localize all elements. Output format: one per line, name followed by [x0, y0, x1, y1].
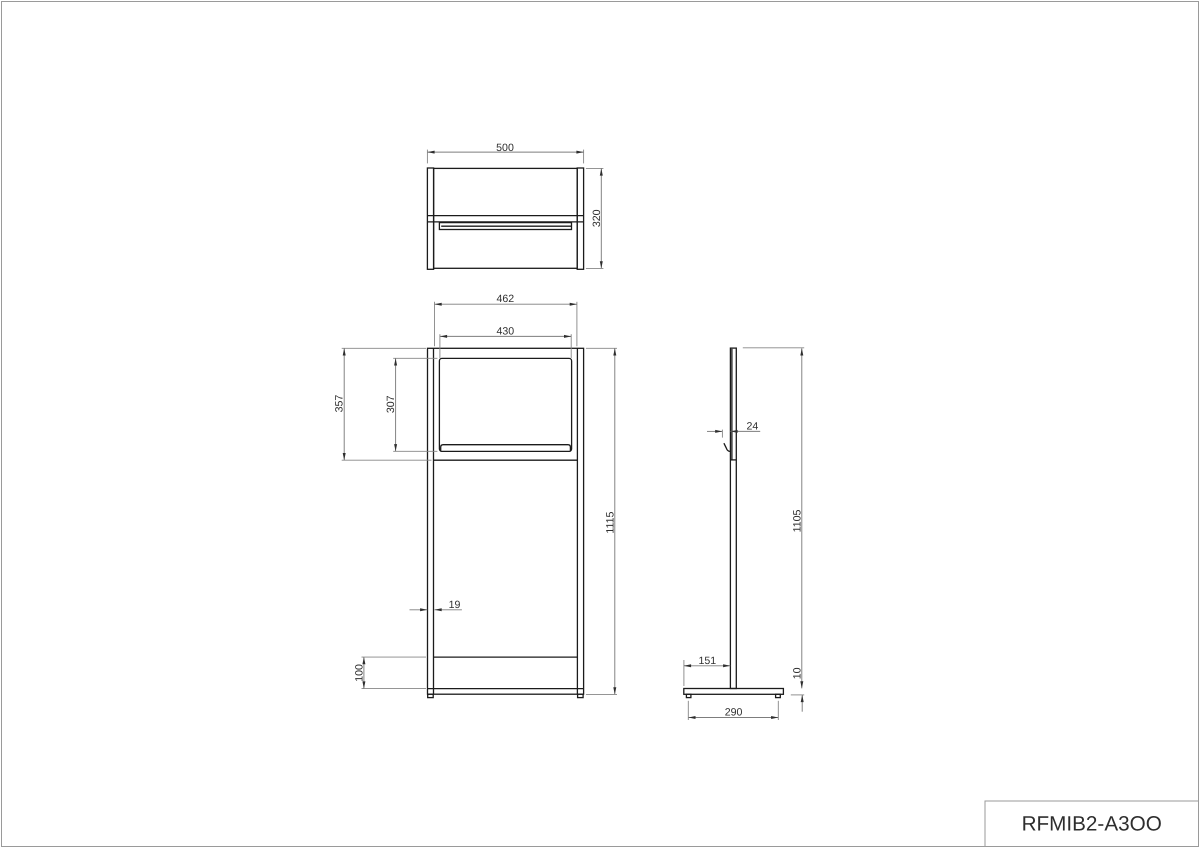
svg-text:24: 24: [747, 420, 759, 432]
svg-text:10: 10: [792, 667, 804, 679]
svg-text:151: 151: [698, 655, 716, 667]
svg-text:357: 357: [334, 395, 346, 413]
svg-text:1115: 1115: [605, 511, 617, 533]
svg-text:320: 320: [591, 209, 603, 227]
svg-text:290: 290: [725, 707, 743, 719]
svg-text:100: 100: [353, 664, 365, 682]
svg-text:19: 19: [449, 599, 461, 611]
svg-text:RFMIB2-A3OO: RFMIB2-A3OO: [1022, 813, 1162, 836]
svg-text:500: 500: [496, 142, 514, 154]
svg-text:1105: 1105: [791, 510, 803, 533]
svg-text:307: 307: [385, 395, 397, 413]
svg-text:462: 462: [496, 293, 514, 305]
svg-text:430: 430: [496, 325, 514, 337]
